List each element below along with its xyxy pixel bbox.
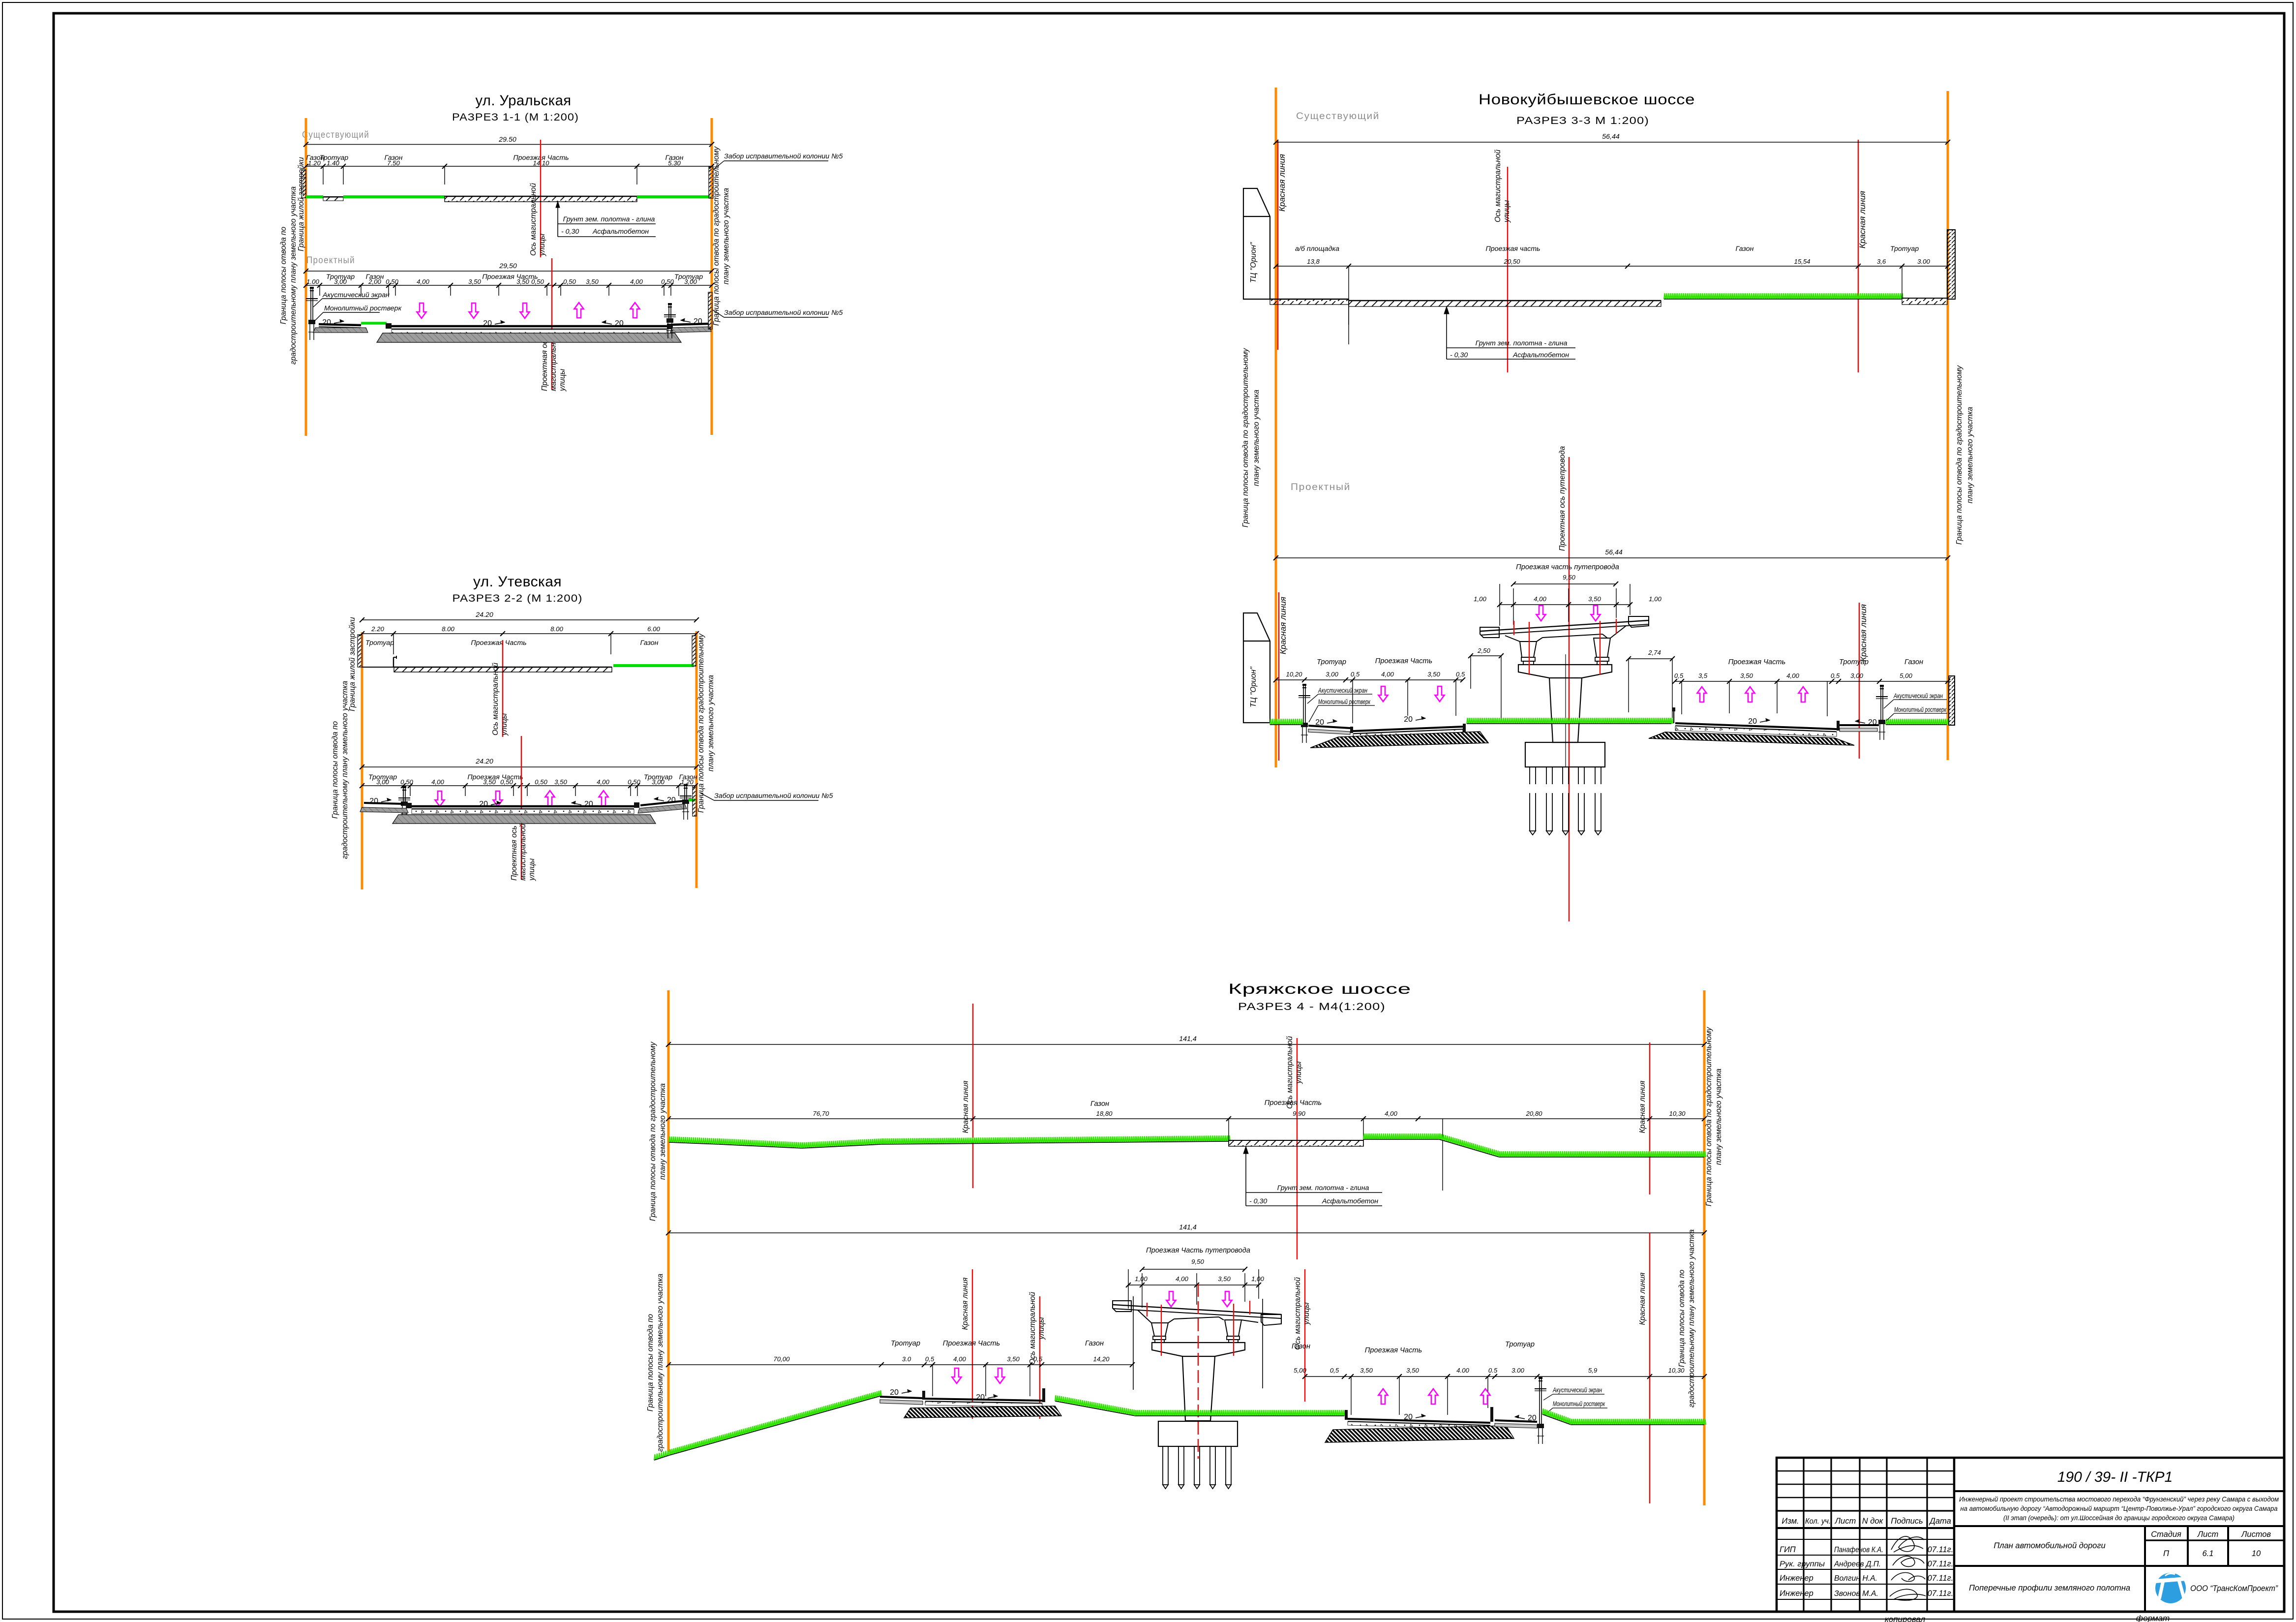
svg-text:Рук. группы: Рук. группы (1780, 1560, 1825, 1568)
svg-text:Тротуар: Тротуар (1505, 1341, 1535, 1348)
svg-text:6.00: 6.00 (647, 625, 660, 633)
svg-text:07.11г.: 07.11г. (1928, 1560, 1954, 1568)
svg-text:Андреев Д.П.: Андреев Д.П. (1834, 1560, 1881, 1568)
svg-text:2,50: 2,50 (1477, 647, 1490, 654)
svg-text:Граница полосы отвода по: Граница полосы отвода по (646, 1314, 655, 1411)
svg-text:3,50: 3,50 (1007, 1355, 1020, 1363)
svg-text:РАЗРЕЗ 1-1 (М 1:200): РАЗРЕЗ 1-1 (М 1:200) (452, 112, 579, 123)
svg-text:20,50: 20,50 (1503, 258, 1520, 265)
svg-text:Красная линия: Красная линия (1277, 154, 1287, 212)
svg-text:Дата: Дата (1929, 1517, 1951, 1526)
svg-text:0,50: 0,50 (400, 778, 413, 786)
svg-text:Тротуар: Тротуар (365, 639, 394, 647)
svg-text:141,4: 141,4 (1179, 1035, 1197, 1043)
svg-text:29.50: 29.50 (498, 136, 516, 144)
svg-text:4.00: 4.00 (1456, 1367, 1469, 1374)
svg-text:Существующий: Существующий (1296, 111, 1380, 122)
svg-text:Лист: Лист (1835, 1517, 1856, 1526)
svg-text:Красная линия: Красная линия (1859, 604, 1868, 662)
svg-text:7.50: 7.50 (387, 159, 400, 167)
svg-text:10,30: 10,30 (1669, 1110, 1686, 1117)
svg-text:Тротуар: Тротуар (1317, 658, 1346, 666)
svg-text:20: 20 (483, 319, 492, 328)
svg-text:Красная линия: Красная линия (1278, 597, 1288, 654)
svg-text:29,50: 29,50 (499, 262, 517, 270)
svg-text:2,74: 2,74 (1648, 649, 1661, 656)
svg-text:Монолитный ростверк: Монолитный ростверк (1318, 698, 1371, 705)
svg-text:- 0,30: - 0,30 (1249, 1197, 1267, 1205)
svg-text:плану земельного участка: плану земельного участка (659, 1083, 667, 1180)
svg-text:градостроительному плану земел: градостроительному плану земельного учас… (289, 186, 298, 365)
svg-text:4,00: 4,00 (630, 278, 643, 285)
svg-text:Кряжское шоссе: Кряжское шоссе (1228, 981, 1411, 997)
svg-text:Панафенов К.А.: Панафенов К.А. (1834, 1546, 1883, 1554)
svg-text:24.20: 24.20 (475, 758, 493, 765)
svg-text:Газон: Газон (1090, 1100, 1109, 1108)
svg-text:Граница полосы отвода по градо: Граница полосы отвода по градостроительн… (1241, 348, 1250, 528)
svg-text:0,50: 0,50 (661, 278, 674, 285)
svg-text:Граница жилой застройки: Граница жилой застройки (348, 617, 357, 711)
svg-text:20: 20 (1404, 1413, 1413, 1421)
svg-text:Тротуар: Тротуар (1890, 245, 1919, 253)
svg-text:Кол. уч.: Кол. уч. (1805, 1517, 1831, 1526)
svg-text:Граница полосы отвода по градо: Граница полосы отвода по градостроительн… (1955, 365, 1964, 545)
svg-text:2,00: 2,00 (368, 278, 381, 285)
svg-text:0,50: 0,50 (500, 778, 513, 786)
svg-text:Тротуар: Тротуар (891, 1340, 920, 1347)
svg-text:20: 20 (1868, 718, 1877, 727)
svg-text:20: 20 (615, 319, 624, 328)
svg-text:141,4: 141,4 (1179, 1224, 1197, 1231)
svg-text:магистральной: магистральной (519, 824, 527, 881)
svg-text:Ось магистральной: Ось магистральной (1286, 1036, 1294, 1109)
svg-text:РАЗРЕЗ 3-3 М 1:200): РАЗРЕЗ 3-3 М 1:200) (1516, 115, 1649, 126)
svg-text:14,20: 14,20 (1093, 1355, 1110, 1363)
svg-text:Забор исправительной колонии №: Забор исправительной колонии №5 (724, 153, 843, 160)
svg-text:1,00: 1,00 (1135, 1275, 1148, 1283)
svg-text:10,30: 10,30 (1668, 1367, 1685, 1374)
svg-text:20: 20 (369, 797, 378, 805)
svg-text:ТЦ "Орион": ТЦ "Орион" (1249, 666, 1258, 707)
svg-text:20: 20 (322, 318, 331, 327)
svg-text:3,00: 3,00 (1850, 672, 1863, 679)
svg-text:Акустический экран: Акустический экран (1552, 1386, 1602, 1394)
svg-text:3,50: 3,50 (468, 278, 481, 285)
svg-text:3,50: 3,50 (586, 278, 599, 285)
svg-text:РАЗРЕЗ 2-2 (М 1:200): РАЗРЕЗ 2-2 (М 1:200) (453, 593, 583, 604)
svg-text:1.20: 1.20 (308, 159, 321, 167)
svg-text:13,8: 13,8 (1307, 258, 1320, 265)
svg-text:3,50: 3,50 (516, 278, 529, 285)
svg-text:56,44: 56,44 (1602, 133, 1620, 141)
svg-text:Забор исправительной колонии №: Забор исправительной колонии №5 (714, 792, 833, 800)
svg-text:20: 20 (890, 1388, 899, 1397)
svg-text:9,50: 9,50 (1563, 574, 1575, 581)
svg-text:3.0: 3.0 (902, 1355, 911, 1363)
svg-text:5,00: 5,00 (1294, 1367, 1306, 1374)
svg-text:20: 20 (1404, 715, 1413, 724)
svg-text:24.20: 24.20 (475, 611, 493, 619)
svg-text:Проектный: Проектный (306, 255, 355, 266)
svg-text:Изм.: Изм. (1782, 1517, 1799, 1526)
svg-text:2.20: 2.20 (371, 625, 384, 633)
svg-text:плану земельного участка: плану земельного участка (707, 675, 715, 771)
svg-text:Акустический экран: Акустический экран (1893, 692, 1943, 700)
svg-text:5,00: 5,00 (1900, 672, 1912, 679)
svg-text:Ось магистральной: Ось магистральной (1494, 150, 1502, 222)
svg-text:4,00: 4,00 (953, 1355, 966, 1363)
svg-text:Забор исправительной колонии №: Забор исправительной колонии №5 (724, 309, 843, 317)
svg-text:3,00: 3,00 (1326, 671, 1338, 678)
svg-text:Газон: Газон (640, 639, 659, 647)
svg-text:3,6: 3,6 (1877, 258, 1886, 265)
svg-text:5.30: 5.30 (668, 159, 681, 167)
svg-text:20: 20 (667, 796, 676, 804)
svg-text:Звонов М.А.: Звонов М.А. (1834, 1590, 1878, 1598)
svg-text:Граница полосы отвода по градо: Граница полосы отвода по градостроительн… (649, 1041, 657, 1222)
svg-text:4,00: 4,00 (1385, 1110, 1397, 1117)
svg-text:Граница полосы отвода по: Граница полосы отвода по (1678, 1269, 1686, 1367)
svg-text:Проектная ось: Проектная ось (541, 336, 549, 391)
svg-text:Асфальтобетон: Асфальтобетон (1512, 351, 1569, 359)
svg-text:градостроительному плану земел: градостроительному плану земельного учас… (1688, 1229, 1696, 1408)
svg-text:Ось магистральной: Ось магистральной (491, 663, 500, 735)
svg-text:улицы: улицы (538, 233, 546, 256)
svg-text:3,00: 3,00 (684, 278, 697, 285)
svg-text:Волгин Н.А.: Волгин Н.А. (1834, 1574, 1877, 1583)
svg-text:градостроительному плану земел: градостроительному плану земельного учас… (341, 681, 349, 859)
svg-text:0,5: 0,5 (1456, 671, 1465, 678)
svg-text:Красная линия: Красная линия (1638, 1273, 1647, 1325)
svg-text:70,00: 70,00 (773, 1355, 790, 1363)
svg-text:Граница полосы отвода по: Граница полосы отвода по (331, 721, 339, 819)
svg-text:а/б площадка: а/б площадка (1295, 245, 1339, 253)
svg-text:Газон: Газон (1904, 658, 1923, 666)
svg-text:улицы: улицы (1302, 1302, 1311, 1325)
svg-text:0,5: 0,5 (1831, 672, 1840, 679)
svg-text:76,70: 76,70 (813, 1110, 829, 1117)
svg-text:Проезжая Часть: Проезжая Часть (471, 639, 526, 647)
svg-text:Проезжая часть: Проезжая часть (1485, 245, 1540, 253)
svg-text:Монолитный ростверк: Монолитный ростверк (324, 305, 402, 312)
svg-text:3,00: 3,00 (334, 278, 347, 285)
svg-text:П: П (2163, 1549, 2169, 1558)
svg-text:0.5: 0.5 (1488, 1367, 1498, 1374)
svg-text:Ось магистральной: Ось магистральной (1294, 1277, 1302, 1350)
svg-text:9,90: 9,90 (1293, 1110, 1305, 1117)
svg-text:3,50: 3,50 (1360, 1367, 1373, 1374)
svg-text:Грунт зем. полотна - глина: Грунт зем. полотна - глина (1277, 1184, 1369, 1192)
svg-text:4,00: 4,00 (1534, 595, 1546, 603)
svg-text:Красная линия: Красная линия (961, 1278, 969, 1330)
svg-text:4,00: 4,00 (1381, 671, 1394, 678)
svg-text:Газон: Газон (1292, 1343, 1310, 1350)
svg-text:3,50: 3,50 (1218, 1275, 1231, 1283)
svg-text:ул. Уральская: ул. Уральская (476, 92, 572, 109)
svg-text:0,5: 0,5 (1330, 1367, 1339, 1374)
svg-text:1.00: 1.00 (306, 278, 319, 285)
svg-text:15,54: 15,54 (1794, 258, 1810, 265)
svg-text:3,50: 3,50 (483, 778, 496, 786)
svg-text:ООО “ТрансКомПроект”: ООО “ТрансКомПроект” (2190, 1584, 2278, 1593)
svg-text:3,50: 3,50 (1406, 1367, 1419, 1374)
svg-text:4,00: 4,00 (431, 778, 444, 786)
svg-text:на автомобильную дорогу “Автод: на автомобильную дорогу “Автодорожный ма… (1961, 1505, 2278, 1512)
svg-text:Инженерный проект строительств: Инженерный проект строительства мостовог… (1959, 1496, 2279, 1503)
svg-text:Асфальтобетон: Асфальтобетон (592, 228, 649, 236)
svg-text:- 0,30: - 0,30 (1450, 351, 1468, 359)
svg-text:улицы: улицы (558, 368, 567, 392)
svg-text:Проезжая Часть: Проезжая Часть (482, 273, 538, 281)
svg-text:6.1: 6.1 (2203, 1549, 2214, 1558)
svg-text:20: 20 (1748, 717, 1757, 726)
svg-text:улицы: улицы (1503, 200, 1511, 223)
svg-text:Акустический экран: Акустический экран (1318, 686, 1367, 694)
svg-text:Стадия: Стадия (2151, 1530, 2181, 1539)
svg-text:20: 20 (1315, 718, 1324, 727)
svg-text:20: 20 (1528, 1414, 1537, 1422)
svg-text:8.00: 8.00 (442, 625, 454, 633)
svg-text:0,5: 0,5 (1033, 1355, 1043, 1363)
svg-text:3.00: 3.00 (1511, 1367, 1524, 1374)
svg-text:5,9: 5,9 (1588, 1367, 1598, 1374)
svg-text:20: 20 (479, 800, 488, 808)
svg-text:0,5: 0,5 (925, 1355, 935, 1363)
svg-text:Газон: Газон (1085, 1340, 1104, 1347)
svg-text:Проектная ось путепровода: Проектная ось путепровода (1558, 446, 1567, 551)
svg-text:1.40: 1.40 (327, 159, 339, 167)
svg-text:формат: формат (2136, 1614, 2170, 1622)
svg-text:Ось магистральной: Ось магистральной (529, 183, 538, 256)
svg-text:- 0,30: - 0,30 (561, 228, 579, 236)
svg-text:Листов: Листов (2241, 1530, 2271, 1539)
svg-text:20: 20 (584, 800, 593, 808)
svg-text:Проезжая часть путепровода: Проезжая часть путепровода (1516, 563, 1619, 571)
svg-text:0,50: 0,50 (535, 778, 547, 786)
svg-text:градостроительному плану земел: градостроительному плану земельного учас… (656, 1274, 665, 1452)
svg-text:Газон: Газон (1736, 245, 1754, 253)
svg-text:20,80: 20,80 (1525, 1110, 1542, 1117)
svg-text:Монолитный ростверк: Монолитный ростверк (1553, 1400, 1605, 1408)
svg-text:0,50: 0,50 (386, 278, 398, 285)
svg-text:ул. Утевская: ул. Утевская (473, 574, 562, 590)
svg-text:56,44: 56,44 (1605, 549, 1623, 556)
svg-text:3,50: 3,50 (1740, 672, 1753, 679)
svg-text:07.11г.: 07.11г. (1928, 1574, 1954, 1583)
svg-text:3,50: 3,50 (1427, 671, 1440, 678)
svg-text:плану земельного участка: плану земельного участка (1715, 1069, 1723, 1165)
svg-text:4,00: 4,00 (417, 278, 429, 285)
svg-text:Красная линия: Красная линия (1638, 1081, 1647, 1133)
svg-text:3,50: 3,50 (554, 778, 567, 786)
svg-text:Проезжая Часть: Проезжая Часть (1728, 658, 1785, 666)
svg-text:ГИП: ГИП (1780, 1545, 1796, 1554)
svg-text:20: 20 (976, 1393, 985, 1402)
svg-text:Асфальтобетон: Асфальтобетон (1322, 1197, 1378, 1205)
svg-text:3,00: 3,00 (652, 778, 665, 786)
svg-text:3,50: 3,50 (1588, 595, 1601, 603)
svg-text:8.00: 8.00 (550, 625, 563, 633)
svg-text:14.10: 14.10 (533, 159, 549, 167)
svg-text:РАЗРЕЗ 4 - М4(1:200): РАЗРЕЗ 4 - М4(1:200) (1238, 1001, 1386, 1012)
svg-text:N док: N док (1862, 1517, 1884, 1526)
svg-text:Лист: Лист (2197, 1530, 2218, 1539)
svg-text:1,00: 1,00 (1649, 595, 1662, 603)
svg-text:Проезжая Часть: Проезжая Часть (943, 1340, 1000, 1347)
svg-text:улицы: улицы (1037, 1317, 1046, 1340)
svg-text:Подпись: Подпись (1891, 1517, 1923, 1526)
svg-text:Инженер: Инженер (1780, 1589, 1813, 1598)
svg-text:10,20: 10,20 (1286, 671, 1302, 678)
svg-text:Красная линия: Красная линия (1858, 191, 1867, 248)
svg-text:плану земельного участка: плану земельного участка (722, 188, 730, 284)
svg-text:(II этап (очередь): от ул.Шосс: (II этап (очередь): от ул.Шоссейная до г… (2003, 1514, 2235, 1522)
svg-text:Инженер: Инженер (1780, 1574, 1813, 1583)
svg-text:Граница жилой застройки: Граница жилой застройки (297, 157, 305, 251)
svg-text:Проезжая Часть путепровода: Проезжая Часть путепровода (1146, 1247, 1250, 1255)
svg-text:улицы: улицы (500, 713, 509, 736)
svg-text:3.00: 3.00 (1917, 258, 1930, 265)
svg-text:Тротуар: Тротуар (1839, 658, 1869, 666)
svg-text:Проезжая Часть: Проезжая Часть (1365, 1347, 1422, 1354)
svg-text:улицы: улицы (528, 858, 536, 881)
svg-text:плану земельного участка: плану земельного участка (1966, 407, 1974, 503)
svg-text:Монолитный ростверк: Монолитный ростверк (1894, 705, 1947, 713)
svg-text:4,00: 4,00 (1176, 1275, 1188, 1283)
svg-text:Проектный: Проектный (1291, 482, 1351, 492)
svg-text:0,50: 0,50 (628, 778, 640, 786)
svg-text:План автомобильной дороги: План автомобильной дороги (1994, 1541, 2105, 1550)
svg-text:9,50: 9,50 (1191, 1258, 1204, 1265)
svg-text:07.11г.: 07.11г. (1928, 1545, 1954, 1554)
svg-text:0,50: 0,50 (531, 278, 544, 285)
svg-text:4,00: 4,00 (1786, 672, 1799, 679)
svg-text:3,5: 3,5 (1698, 672, 1708, 679)
svg-text:1,00: 1,00 (1251, 1275, 1264, 1283)
svg-text:Проектная ось: Проектная ось (510, 826, 518, 881)
svg-text:Существующий: Существующий (302, 130, 369, 140)
svg-text:Акустический экран: Акустический экран (322, 291, 390, 299)
svg-text:0,5: 0,5 (1674, 672, 1684, 679)
svg-text:Грунт зем. полотна - глина: Грунт зем. полотна - глина (1476, 339, 1568, 347)
svg-text:0,50: 0,50 (563, 278, 576, 285)
svg-text:Новокуйбышевское шоссе: Новокуйбышевское шоссе (1479, 92, 1695, 108)
svg-text:20: 20 (694, 317, 702, 326)
svg-text:Поперечные профили земляного п: Поперечные профили земляного полотна (1969, 1584, 2130, 1592)
svg-text:Грунт зем. полотна - глина: Грунт зем. полотна - глина (563, 215, 655, 223)
svg-text:0,5: 0,5 (1351, 671, 1360, 678)
svg-text:Красная линия: Красная линия (962, 1081, 970, 1133)
svg-text:Ось магистральной: Ось магистральной (1028, 1292, 1037, 1365)
svg-text:07.11г.: 07.11г. (1928, 1589, 1954, 1598)
svg-text:Проезжая Часть: Проезжая Часть (1375, 657, 1432, 665)
svg-text:Проезжая Часть: Проезжая Часть (1265, 1099, 1322, 1107)
svg-text:18,80: 18,80 (1096, 1110, 1113, 1117)
svg-text:ТЦ "Орион": ТЦ "Орион" (1249, 242, 1258, 283)
svg-text:1,00: 1,00 (1474, 595, 1486, 603)
svg-text:Граница полосы отвода по градо: Граница полосы отвода по градостроительн… (697, 633, 705, 813)
svg-text:плану земельного участка: плану земельного участка (1252, 390, 1261, 486)
svg-text:улицы: улицы (1295, 1061, 1303, 1084)
svg-text:3,00: 3,00 (376, 778, 389, 786)
svg-text:10: 10 (2252, 1549, 2261, 1558)
svg-text:копировал: копировал (1885, 1615, 1926, 1622)
svg-text:4,00: 4,00 (597, 778, 609, 786)
svg-text:190 / 39- II -ТКР1: 190 / 39- II -ТКР1 (2057, 1469, 2173, 1485)
svg-text:Граница полосы отвода по: Граница полосы отвода по (279, 226, 288, 324)
